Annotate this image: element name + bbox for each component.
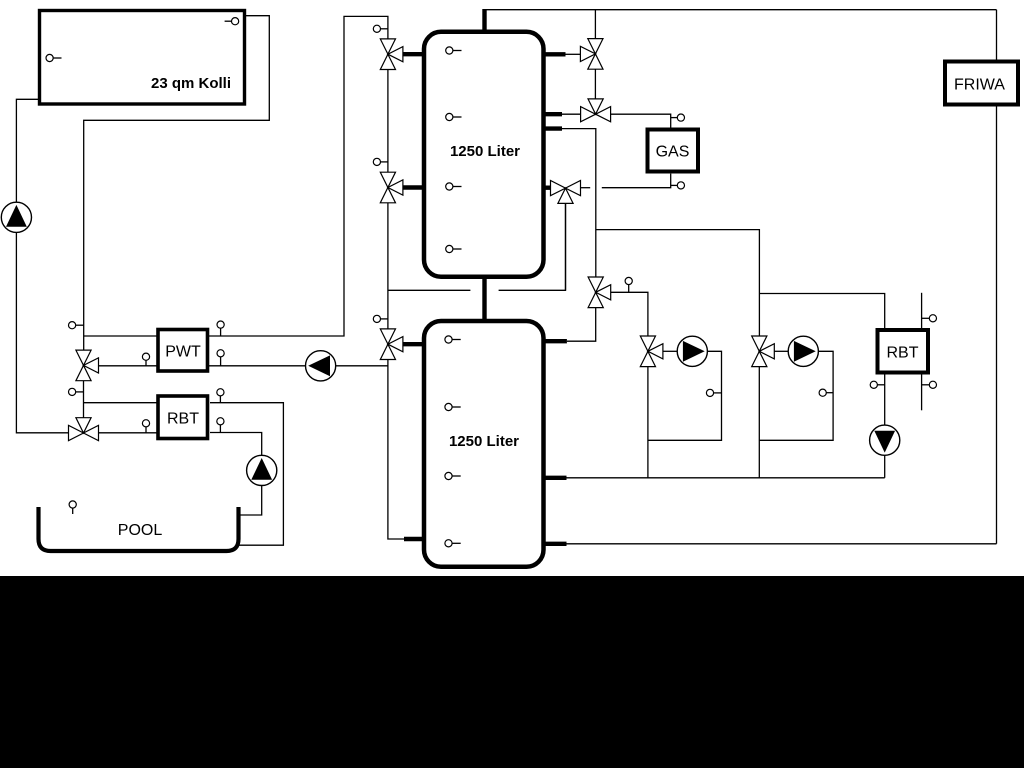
svg-text:RBT: RBT <box>887 345 919 362</box>
svg-text:23 qm Kolli: 23 qm Kolli <box>151 75 231 92</box>
svg-text:1250 Liter: 1250 Liter <box>450 143 520 160</box>
svg-text:PWT: PWT <box>165 344 201 361</box>
svg-text:1250 Liter: 1250 Liter <box>449 433 519 450</box>
svg-text:FRIWA: FRIWA <box>954 77 1005 94</box>
svg-text:RBT: RBT <box>167 411 199 428</box>
svg-text:GAS: GAS <box>656 144 690 161</box>
svg-text:POOL: POOL <box>118 522 163 539</box>
